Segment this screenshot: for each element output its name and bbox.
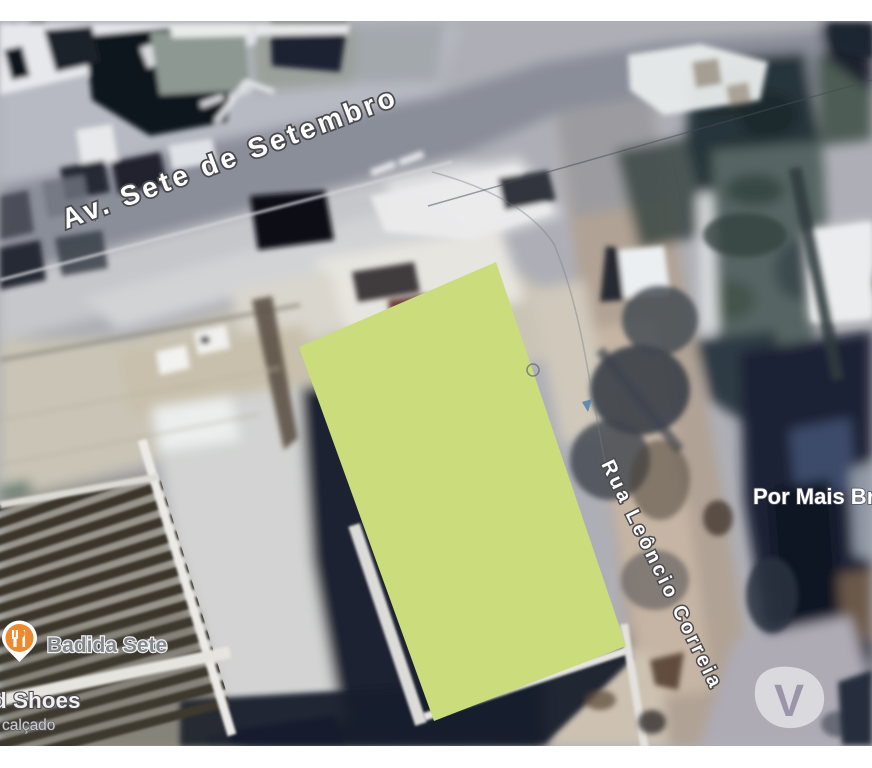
svg-text:d Shoes: d Shoes <box>0 688 81 713</box>
svg-text:V: V <box>774 675 804 726</box>
svg-text:Badida Sete: Badida Sete <box>47 634 167 657</box>
svg-text:calçado: calçado <box>2 717 55 734</box>
svg-text:Por Mais Bra: Por Mais Bra <box>753 484 872 509</box>
